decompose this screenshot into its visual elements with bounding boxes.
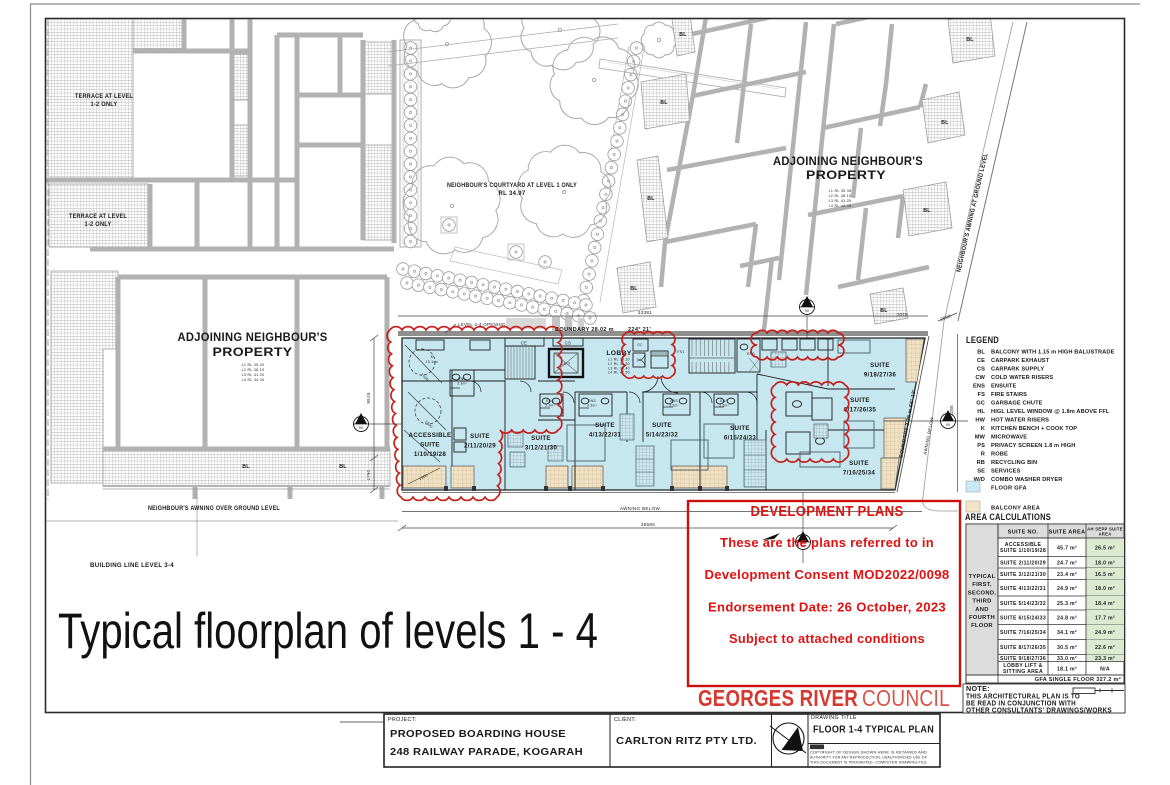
- svg-text:GC: GC: [976, 401, 985, 407]
- svg-text:TYPICAL: TYPICAL: [969, 574, 996, 580]
- svg-text:HL: HL: [977, 409, 985, 415]
- svg-text:L4 RL 44.30: L4 RL 44.30: [242, 378, 265, 382]
- svg-text:TERRACE AT LEVEL: TERRACE AT LEVEL: [69, 213, 127, 220]
- svg-text:26.5 m²: 26.5 m²: [1095, 545, 1115, 551]
- svg-text:18.4 m²: 18.4 m²: [1095, 601, 1115, 607]
- svg-text:BL: BL: [977, 350, 985, 356]
- svg-text:LEGEND: LEGEND: [966, 335, 999, 346]
- svg-text:3.3m²: 3.3m²: [719, 404, 729, 408]
- svg-text:FIRE STAIRS: FIRE STAIRS: [991, 392, 1027, 398]
- svg-text:BOUNDARY 28.02 m: BOUNDARY 28.02 m: [555, 327, 614, 333]
- svg-text:GEORGES RIVER: GEORGES RIVER: [698, 685, 858, 711]
- svg-text:3.3m²: 3.3m²: [545, 404, 555, 408]
- svg-text:NEIGHBOUR'S COURTYARD AT LEVEL: NEIGHBOUR'S COURTYARD AT LEVEL 1 ONLY: [447, 183, 577, 189]
- svg-text:CARPARK EXHAUST: CARPARK EXHAUST: [991, 358, 1050, 364]
- svg-text:CARLTON RITZ PTY LTD.: CARLTON RITZ PTY LTD.: [616, 736, 757, 747]
- svg-text:GC: GC: [637, 343, 643, 347]
- svg-text:SECOND,: SECOND,: [968, 590, 997, 596]
- svg-text:ADJOINING NEIGHBOUR'S: ADJOINING NEIGHBOUR'S: [773, 156, 923, 168]
- svg-text:SUITE 3/12/21/30: SUITE 3/12/21/30: [1000, 572, 1046, 578]
- svg-text:7/16/25/34: 7/16/25/34: [843, 470, 876, 477]
- svg-text:34.1 m²: 34.1 m²: [1057, 630, 1077, 636]
- svg-text:SUITE 7/16/25/34: SUITE 7/16/25/34: [1000, 630, 1046, 636]
- svg-text:90: 90: [805, 309, 810, 313]
- svg-text:BL: BL: [660, 100, 668, 106]
- svg-text:ENS: ENS: [458, 377, 466, 381]
- svg-text:SUITE: SUITE: [850, 397, 870, 404]
- svg-text:GFA SINGLE FLOOR 327.2 m²: GFA SINGLE FLOOR 327.2 m²: [1035, 676, 1121, 683]
- svg-text:ENS: ENS: [670, 399, 678, 403]
- svg-text:AWNING BELOW: AWNING BELOW: [620, 506, 661, 511]
- svg-text:33.0 m²: 33.0 m²: [1057, 656, 1077, 662]
- svg-text:ENS: ENS: [546, 399, 554, 403]
- svg-text:CE: CE: [521, 341, 527, 346]
- svg-text:24.9 m²: 24.9 m²: [1057, 586, 1077, 592]
- svg-text:RB: RB: [977, 460, 985, 466]
- svg-text:AREA CALCULATIONS: AREA CALCULATIONS: [965, 512, 1051, 522]
- svg-text:SUITE: SUITE: [595, 422, 615, 429]
- svg-text:90: 90: [359, 426, 364, 430]
- svg-text:CW: CW: [975, 375, 985, 381]
- svg-text:L1 RL 35.35: L1 RL 35.35: [829, 189, 852, 193]
- svg-text:SUITE: SUITE: [730, 425, 750, 432]
- svg-text:L2 RL 36.30: L2 RL 36.30: [608, 362, 630, 366]
- svg-text:HIGL LEVEL WINDOW @ 1.8m ABOVE: HIGL LEVEL WINDOW @ 1.8m ABOVE FFL: [991, 409, 1110, 415]
- svg-text:N/A: N/A: [1100, 666, 1110, 672]
- svg-text:SUITE 4/13/22/31: SUITE 4/13/22/31: [1000, 586, 1046, 592]
- svg-text:RL 34.97: RL 34.97: [499, 191, 526, 197]
- svg-text:L3 RL 41.25: L3 RL 41.25: [829, 199, 852, 203]
- svg-text:33381: 33381: [638, 310, 652, 315]
- svg-text:SUITE: SUITE: [849, 460, 869, 467]
- svg-text:22.6 m²: 22.6 m²: [1095, 645, 1115, 651]
- svg-text:THIS DOCUMENT IS PROHIBITED. C: THIS DOCUMENT IS PROHIBITED. COMPUTER DR…: [810, 761, 927, 765]
- svg-text:10.1m²: 10.1m²: [426, 360, 439, 364]
- svg-text:NEIGHBOUR'S AWNING AT GROUND L: NEIGHBOUR'S AWNING AT GROUND LEVEL: [955, 152, 989, 272]
- svg-text:COLD WATER RISERS: COLD WATER RISERS: [991, 375, 1053, 381]
- svg-text:FIRST,: FIRST,: [972, 582, 992, 588]
- svg-text:Development Consent MOD2022/00: Development Consent MOD2022/0098: [705, 567, 950, 582]
- svg-text:PRIVACY SCREEN 1.8 m HIGH: PRIVACY SCREEN 1.8 m HIGH: [991, 443, 1075, 449]
- svg-text:L3 RL 39.40: L3 RL 39.40: [608, 366, 630, 370]
- svg-text:25.3 m²: 25.3 m²: [1057, 601, 1077, 607]
- svg-text:45.7 m²: 45.7 m²: [1057, 545, 1077, 551]
- svg-text:PROJECT:: PROJECT:: [388, 717, 416, 723]
- svg-text:SE: SE: [977, 469, 985, 475]
- svg-text:SUITE 2/11/20/29: SUITE 2/11/20/29: [1000, 560, 1046, 566]
- svg-text:30.5 m²: 30.5 m²: [1057, 645, 1077, 651]
- svg-text:TERRACE AT LEVEL: TERRACE AT LEVEL: [75, 93, 133, 100]
- svg-text:3.3m²: 3.3m²: [457, 382, 467, 386]
- svg-text:SUITE: SUITE: [652, 422, 672, 429]
- svg-text:BUILDING LINE LEVEL 3-4: BUILDING LINE LEVEL 3-4: [90, 562, 174, 569]
- svg-text:AREA: AREA: [1098, 532, 1111, 537]
- svg-text:SUITE NO.: SUITE NO.: [1008, 530, 1039, 536]
- svg-text:HOT WATER RISERS: HOT WATER RISERS: [991, 418, 1049, 424]
- svg-text:COUNCIL: COUNCIL: [862, 685, 950, 711]
- svg-text:1/10/19/28: 1/10/19/28: [414, 451, 447, 458]
- svg-text:DEVELOPMENT PLANS: DEVELOPMENT PLANS: [751, 504, 904, 520]
- svg-text:24.9 m²: 24.9 m²: [1095, 630, 1115, 636]
- svg-text:BL: BL: [630, 286, 638, 292]
- svg-text:2/11/20/29: 2/11/20/29: [464, 443, 496, 450]
- svg-text:FOURTH: FOURTH: [969, 615, 995, 621]
- svg-text:SUITE: SUITE: [870, 362, 890, 369]
- svg-text:SUITE 1/10/19/28: SUITE 1/10/19/28: [1000, 548, 1046, 554]
- svg-text:FLOOR: FLOOR: [971, 623, 993, 629]
- svg-text:AND: AND: [975, 607, 988, 613]
- svg-text:Subject to attached conditions: Subject to attached conditions: [729, 631, 925, 646]
- svg-text:MICROWAVE: MICROWAVE: [991, 435, 1027, 441]
- svg-text:HW: HW: [975, 418, 985, 424]
- svg-text:17.7 m²: 17.7 m²: [1095, 615, 1115, 621]
- svg-text:18.0 m²: 18.0 m²: [1095, 586, 1115, 592]
- svg-text:FS: FS: [978, 392, 986, 398]
- svg-text:L1 RL 33.20: L1 RL 33.20: [608, 358, 630, 362]
- svg-text:16.5 m²: 16.5 m²: [1095, 572, 1115, 578]
- svg-text:5/14/23/32: 5/14/23/32: [646, 432, 679, 439]
- svg-text:THIRD: THIRD: [972, 599, 991, 605]
- svg-text:LOBBY: LOBBY: [606, 350, 631, 357]
- svg-text:COPYRIGHT OF DESIGN SHOWN HERE: COPYRIGHT OF DESIGN SHOWN HERE IS RETAIN…: [810, 751, 927, 755]
- svg-text:These are the plans referred t: These are the plans referred to in: [720, 535, 934, 550]
- svg-text:GARBAGE CHUTE: GARBAGE CHUTE: [991, 401, 1043, 407]
- svg-text:R: R: [981, 452, 985, 458]
- svg-text:COMBO WASHER DRYER: COMBO WASHER DRYER: [991, 477, 1062, 483]
- svg-text:9515: 9515: [366, 392, 371, 404]
- svg-text:BALCONY WITH 1.15 m HIGH BALUS: BALCONY WITH 1.15 m HIGH BALUSTRADE: [991, 350, 1115, 356]
- svg-text:L2 RL 38.10: L2 RL 38.10: [242, 368, 265, 372]
- svg-text:CS: CS: [565, 341, 571, 346]
- svg-text:L4 RL 42.50: L4 RL 42.50: [608, 371, 630, 375]
- svg-text:18.0 m²: 18.0 m²: [1095, 560, 1115, 566]
- svg-text:ENS: ENS: [588, 399, 596, 403]
- svg-text:PROPOSED BOARDING HOUSE: PROPOSED BOARDING HOUSE: [390, 729, 566, 740]
- svg-text:4/13/22/31: 4/13/22/31: [589, 432, 622, 439]
- svg-text:MW: MW: [975, 435, 986, 441]
- svg-text:3/12/21/30: 3/12/21/30: [525, 445, 558, 452]
- svg-text:L2 RL 38.15: L2 RL 38.15: [829, 194, 852, 198]
- svg-text:ROBE: ROBE: [991, 452, 1008, 458]
- svg-text:9/18/27/36: 9/18/27/36: [864, 372, 897, 379]
- svg-text:2500: 2500: [939, 313, 951, 322]
- svg-text:1-2 ONLY: 1-2 ONLY: [91, 101, 119, 108]
- svg-text:NEIGHBOUR'S AWNING OVER GROUND: NEIGHBOUR'S AWNING OVER GROUND LEVEL: [148, 505, 280, 512]
- svg-text:6/15/24/33: 6/15/24/33: [724, 435, 757, 442]
- svg-text:24.7 m²: 24.7 m²: [1057, 560, 1077, 566]
- svg-text:L1 RL 35.00: L1 RL 35.00: [242, 363, 265, 367]
- svg-text:OTHER CONSULTANTS' DRAWINGS/WO: OTHER CONSULTANTS' DRAWINGS/WORKS: [966, 706, 1112, 715]
- svg-text:LOBBY LIFT &: LOBBY LIFT &: [1003, 663, 1042, 669]
- svg-text:SUITE: SUITE: [470, 433, 490, 440]
- svg-text:SERVICES: SERVICES: [991, 469, 1021, 475]
- svg-text:SUITE 9/18/27/36: SUITE 9/18/27/36: [1000, 656, 1046, 662]
- svg-text:18.1 m²: 18.1 m²: [1057, 666, 1077, 672]
- svg-text:23.4 m²: 23.4 m²: [1057, 572, 1077, 578]
- svg-text:BL: BL: [923, 208, 931, 214]
- svg-text:23.3 m²: 23.3 m²: [1095, 656, 1115, 662]
- svg-text:ENSUITE: ENSUITE: [991, 384, 1016, 390]
- svg-text:24.8 m²: 24.8 m²: [1057, 615, 1077, 621]
- svg-text:K: K: [981, 426, 986, 432]
- svg-text:ENS: ENS: [973, 384, 985, 390]
- svg-text:3.3m²: 3.3m²: [587, 404, 597, 408]
- svg-text:1-2 ONLY: 1-2 ONLY: [85, 221, 113, 228]
- svg-text:SUITE 5/14/23/32: SUITE 5/14/23/32: [1000, 601, 1046, 607]
- svg-text:36585: 36585: [641, 522, 655, 527]
- svg-text:ACCESSIBLE: ACCESSIBLE: [1005, 542, 1042, 548]
- svg-text:BALCONY AREA: BALCONY AREA: [991, 506, 1040, 512]
- svg-text:ADJOINING NEIGHBOUR'S: ADJOINING NEIGHBOUR'S: [178, 332, 328, 344]
- svg-text:ACCESSIBLE: ACCESSIBLE: [409, 432, 452, 439]
- svg-text:CLIENT:: CLIENT:: [614, 717, 636, 723]
- svg-text:BL: BL: [242, 464, 250, 470]
- svg-text:LIFT: LIFT: [561, 362, 570, 366]
- svg-text:FLOOR 1-4 TYPICAL PLAN: FLOOR 1-4 TYPICAL PLAN: [813, 725, 934, 736]
- svg-text:3.3m²: 3.3m²: [669, 404, 679, 408]
- svg-text:BL: BL: [966, 37, 974, 43]
- svg-text:BL: BL: [339, 464, 347, 470]
- svg-text:FLOOR GFA: FLOOR GFA: [991, 486, 1027, 492]
- svg-text:BL: BL: [647, 196, 655, 202]
- svg-text:Endorsement Date: 26 October,: Endorsement Date: 26 October, 2023: [708, 600, 946, 615]
- svg-text:L4 RL 44.35: L4 RL 44.35: [829, 204, 852, 208]
- svg-text:1750: 1750: [366, 469, 371, 480]
- svg-text:SUITE 8/17/26/35: SUITE 8/17/26/35: [1000, 645, 1046, 651]
- svg-text:PROPERTY: PROPERTY: [213, 347, 293, 359]
- svg-text:BL: BL: [941, 120, 949, 126]
- svg-text:ENS: ENS: [720, 399, 728, 403]
- svg-text:L3 RL 41.20: L3 RL 41.20: [242, 373, 265, 377]
- svg-text:90: 90: [946, 423, 951, 427]
- svg-text:SITTING AREA: SITTING AREA: [1003, 669, 1043, 675]
- svg-text:CARPARK SUPPLY: CARPARK SUPPLY: [991, 367, 1044, 373]
- svg-text:RECYCLING BIN: RECYCLING BIN: [991, 460, 1037, 466]
- svg-text:SUITE: SUITE: [420, 442, 440, 449]
- svg-text:DRAWING TITLE: DRAWING TITLE: [811, 715, 857, 721]
- svg-text:PS: PS: [977, 443, 985, 449]
- svg-text:KITCHEN BENCH + COOK TOP: KITCHEN BENCH + COOK TOP: [991, 426, 1077, 432]
- svg-text:BL: BL: [679, 32, 687, 38]
- svg-text:PROPERTY: PROPERTY: [806, 170, 886, 182]
- svg-text:FS1: FS1: [677, 350, 685, 354]
- svg-text:248 RAILWAY PARADE, KOGARAH: 248 RAILWAY PARADE, KOGARAH: [390, 747, 583, 758]
- svg-text:SUITE AREA: SUITE AREA: [1049, 530, 1086, 536]
- svg-text:CS: CS: [977, 367, 985, 373]
- svg-text:AUTHORITY FOR ANY REPRODUCTION: AUTHORITY FOR ANY REPRODUCTION, UNAUTHOR…: [810, 756, 927, 760]
- svg-text:SUITE: SUITE: [531, 435, 551, 442]
- svg-text:K: K: [431, 355, 434, 359]
- svg-text:BL: BL: [880, 308, 888, 314]
- svg-text:SUITE 6/15/24/33: SUITE 6/15/24/33: [1000, 615, 1046, 621]
- svg-text:CE: CE: [977, 358, 985, 364]
- svg-text:Typical floorplan of levels 1: Typical floorplan of levels 1 - 4: [58, 602, 598, 659]
